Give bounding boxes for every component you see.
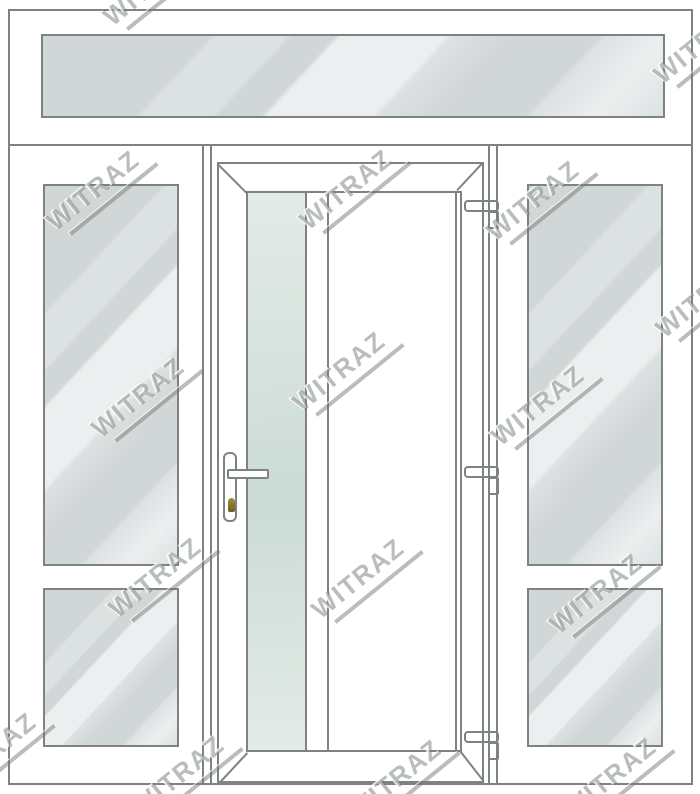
- right-mullion-outer-line: [496, 146, 498, 783]
- left-mullion-inner-line: [210, 146, 212, 783]
- outer-frame: [8, 9, 693, 785]
- door-handle-lever: [227, 469, 269, 479]
- right-mullion-inner-line: [488, 146, 490, 783]
- keyhole: [228, 498, 235, 512]
- door-product-image: WITRAZWITRAZWITRAZWITRAZWITRAZWITRAZWITR…: [0, 0, 700, 794]
- transom-divider: [8, 144, 693, 146]
- left-mullion-outer-line: [202, 146, 204, 783]
